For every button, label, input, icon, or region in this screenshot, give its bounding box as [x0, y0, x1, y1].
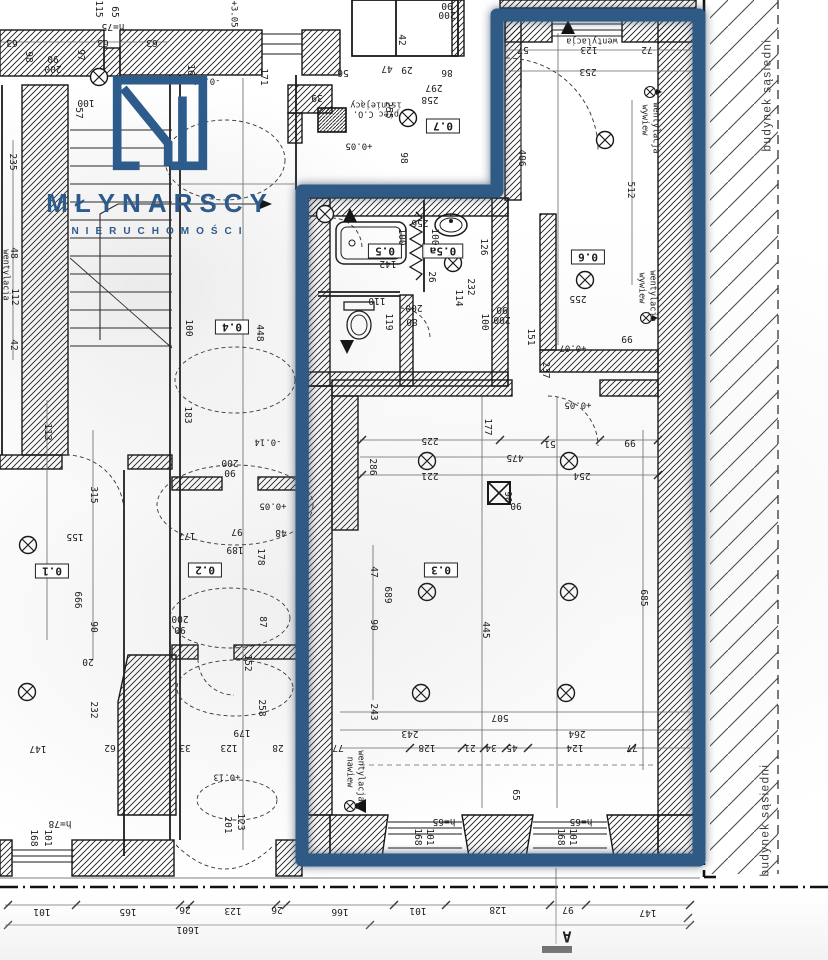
- brand-title: MŁYNARSCY: [30, 188, 290, 219]
- brand-logo-mark: [109, 72, 211, 174]
- brand-subtitle: NIERUCHOMOŚCI: [30, 226, 290, 237]
- brand-logo: MŁYNARSCY NIERUCHOMOŚCI: [30, 72, 290, 237]
- apartment-highlight-outline: [302, 15, 699, 860]
- floorplan-page: 0.10.20.30.40.50.5a0.60.7639890200636311…: [0, 0, 828, 960]
